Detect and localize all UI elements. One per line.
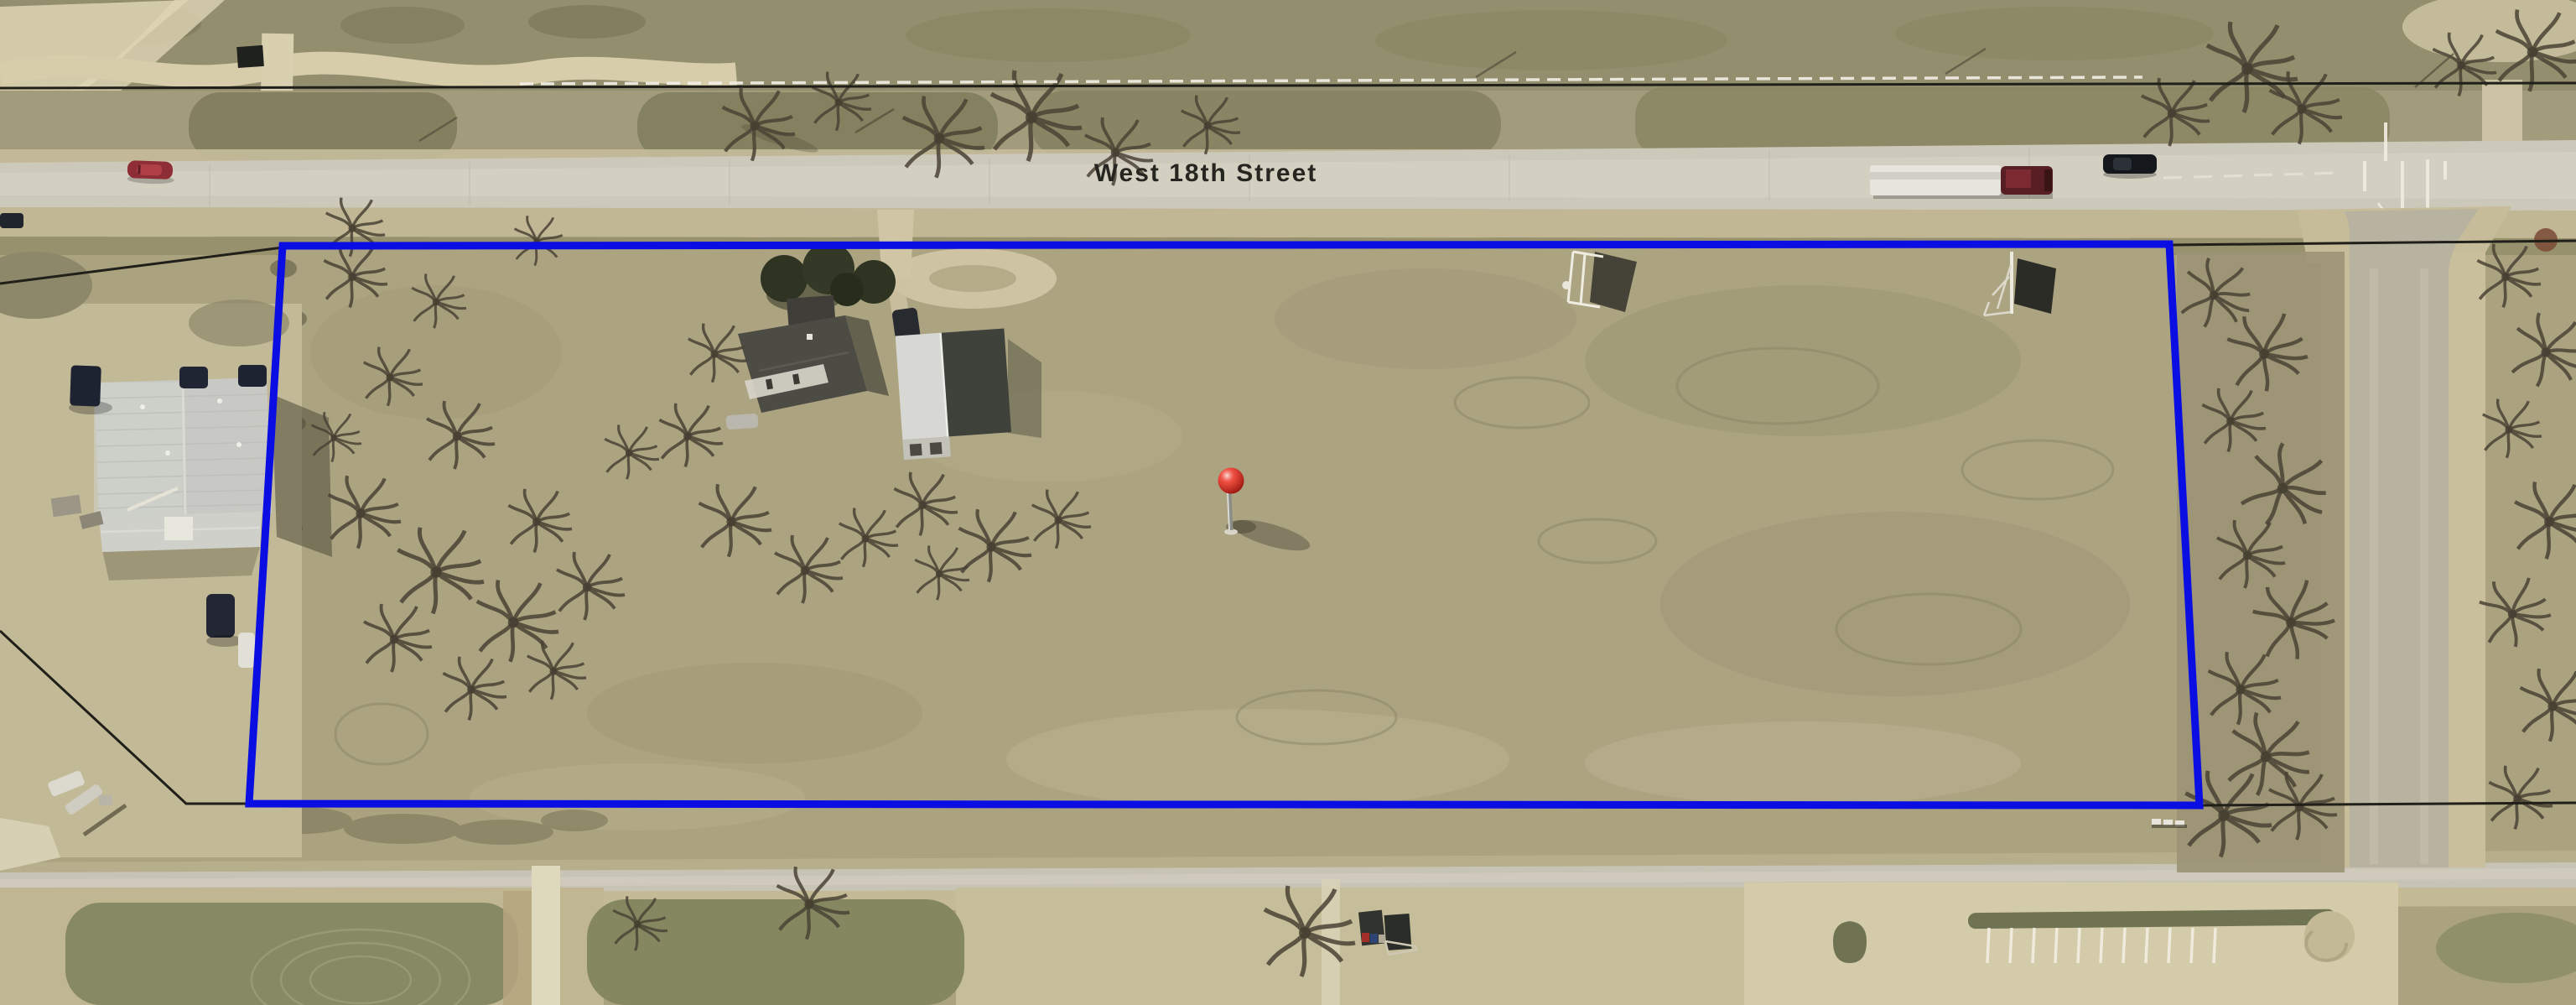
aerial-map-viewport[interactable]: West 18th Street <box>0 0 2576 1005</box>
red-car <box>127 160 174 185</box>
car-silver <box>725 414 758 430</box>
parcel-field <box>249 244 2199 845</box>
semi-truck <box>1870 165 2053 199</box>
black-pickup <box>2103 154 2157 179</box>
aerial-map-canvas[interactable] <box>0 0 2576 1005</box>
